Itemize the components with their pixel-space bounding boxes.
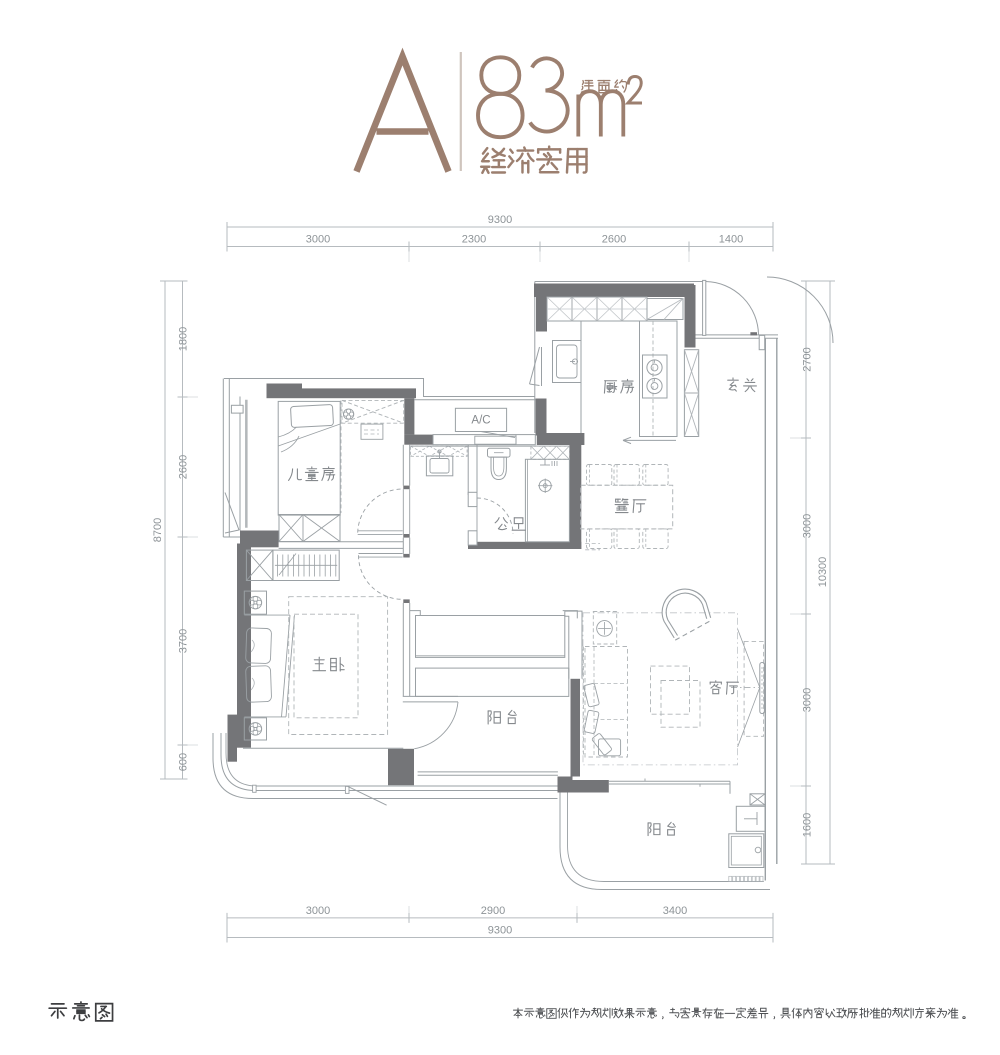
svg-text:3000: 3000 [306, 234, 330, 246]
svg-text:3400: 3400 [663, 905, 687, 917]
svg-text:2900: 2900 [481, 905, 505, 917]
svg-text:600: 600 [178, 753, 190, 771]
svg-text:3700: 3700 [178, 629, 190, 653]
svg-text:2700: 2700 [802, 347, 814, 371]
svg-text:2600: 2600 [602, 234, 626, 246]
svg-text:2600: 2600 [178, 455, 190, 479]
svg-text:1800: 1800 [178, 327, 190, 351]
svg-text:3000: 3000 [306, 905, 330, 917]
svg-text:9300: 9300 [488, 925, 512, 937]
svg-text:1600: 1600 [802, 813, 814, 837]
svg-text:8700: 8700 [152, 518, 164, 542]
svg-text:9300: 9300 [488, 214, 512, 226]
svg-text:3000: 3000 [802, 688, 814, 712]
svg-text:A/C: A/C [471, 415, 490, 427]
svg-text:1400: 1400 [719, 234, 743, 246]
svg-text:10300: 10300 [817, 557, 829, 588]
svg-text:2300: 2300 [462, 234, 486, 246]
svg-text:3000: 3000 [802, 514, 814, 538]
